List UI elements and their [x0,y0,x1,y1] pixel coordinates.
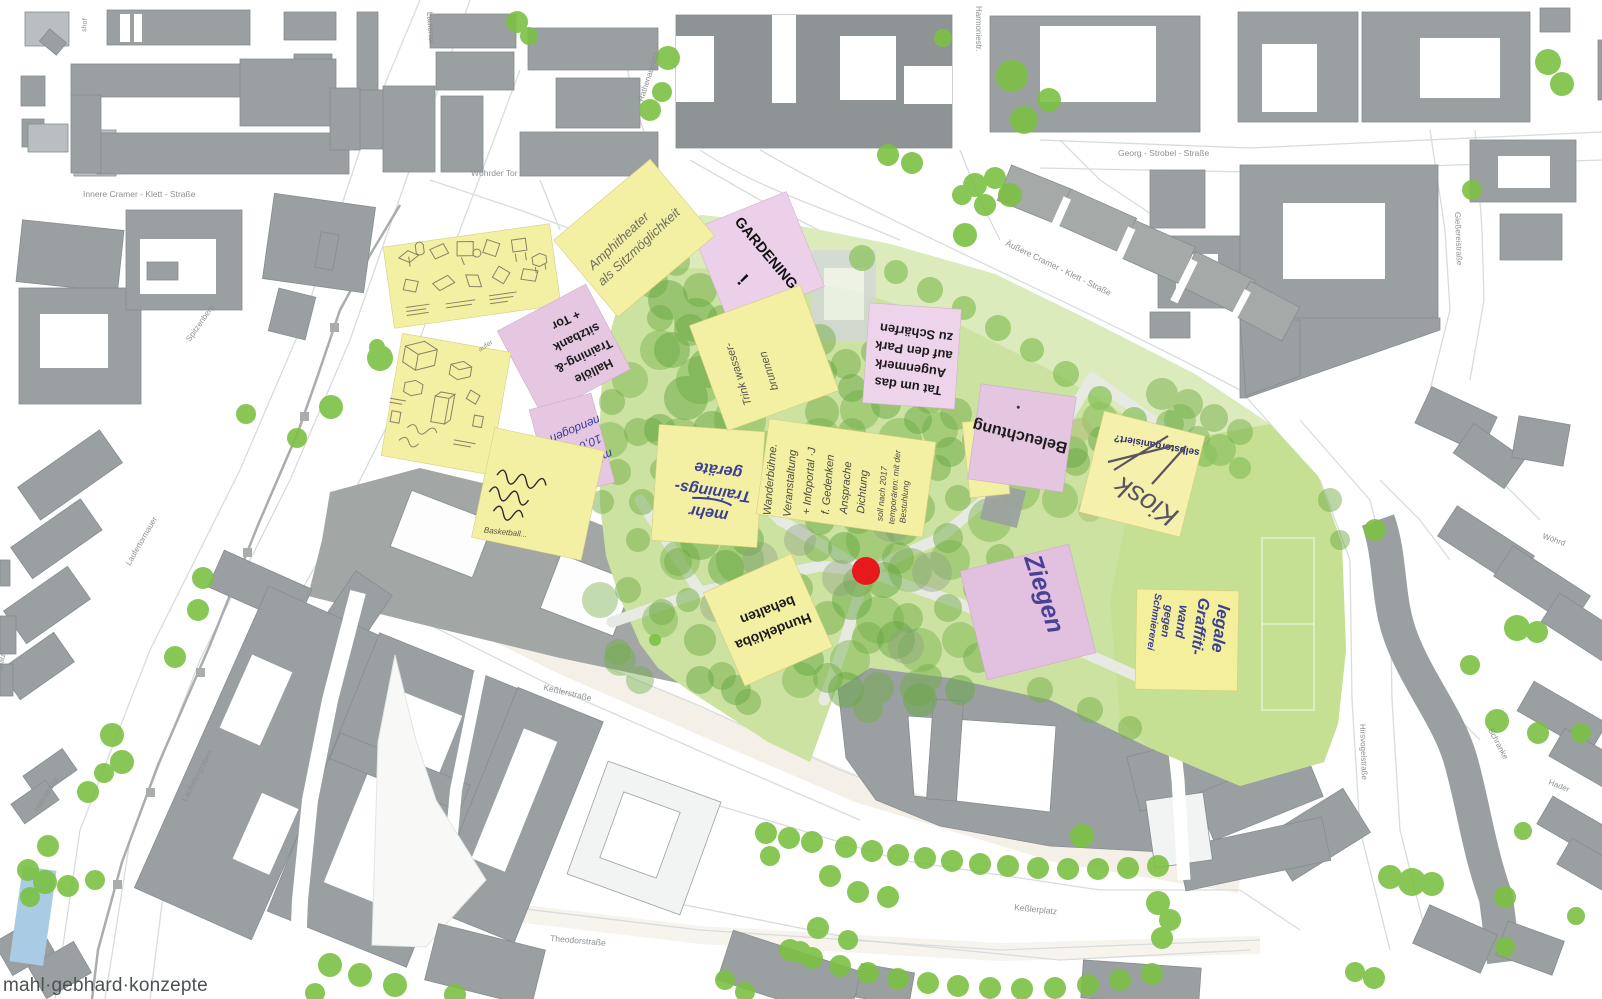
svg-text:Innere Cramer - Klett - Straße: Innere Cramer - Klett - Straße [83,189,196,199]
svg-text:Harmoniestr.: Harmoniestr. [974,6,983,51]
svg-text:Wöhrder Tor: Wöhrder Tor [471,168,518,178]
svg-text:Gießereistraße: Gießereistraße [1453,212,1464,266]
svg-text:mahl·gebhard·konzepte: mahl·gebhard·konzepte [3,975,208,996]
svg-text:Georg - Strobel - Straße: Georg - Strobel - Straße [1118,148,1209,158]
svg-text:shof: shof [81,18,89,32]
